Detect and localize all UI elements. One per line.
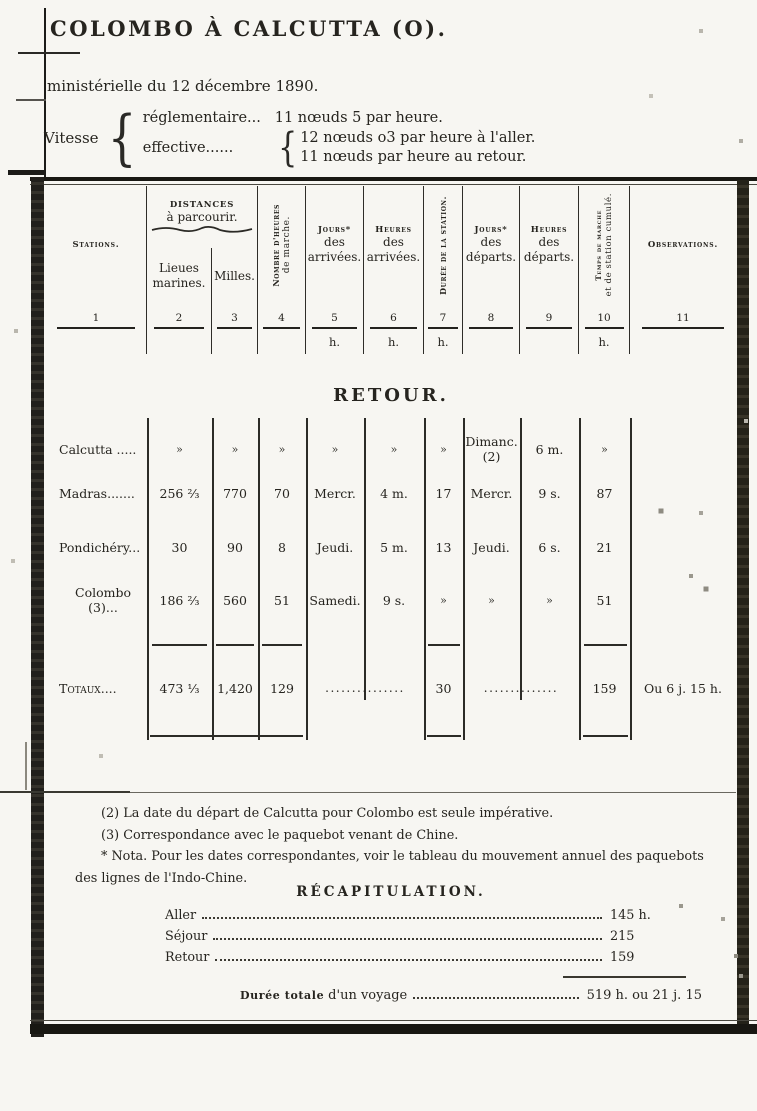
- table-frame-left: [31, 177, 44, 1037]
- footnote-separator-left: [0, 791, 130, 793]
- table-cell: »: [212, 443, 258, 456]
- table-cell: 51: [579, 593, 630, 608]
- recap-value: 215: [610, 929, 705, 944]
- table-cell: 4 m.: [364, 486, 424, 501]
- footnotes-block: (2) La date du départ de Calcutta pour C…: [75, 803, 723, 889]
- recap-label: Séjour: [165, 929, 207, 944]
- header-jours-departs: Jours* des départs.: [463, 186, 520, 304]
- header-temps-cumule: Temps de marche et de station cumulé.: [579, 186, 630, 304]
- table-cell: ...............: [306, 681, 424, 695]
- left-brace-glyph: {: [107, 108, 136, 168]
- closing-rule: [583, 735, 628, 737]
- unit-cell: [258, 330, 306, 354]
- header-heures-arrivees: Heures des arrivées.: [364, 186, 424, 304]
- table-cell: 186 ⅔: [147, 593, 212, 608]
- unit-cell: [46, 330, 147, 354]
- recap-total-value: 519 h. ou 21 j. 15: [587, 988, 702, 1003]
- recap-value: 145 h.: [610, 908, 705, 923]
- header-distances-title: DISTANCES: [170, 200, 234, 210]
- unit-h: h.: [424, 330, 463, 354]
- speed-reglementaire-value: 11 nœuds 5 par heure.: [275, 108, 443, 128]
- table-row-pondichery: Pondichéry... 30 90 8 Jeudi. 5 m. 13 Jeu…: [46, 531, 736, 563]
- column-number: 8: [463, 304, 520, 330]
- observations-cell: Ou 6 j. 15 h.: [630, 681, 736, 696]
- station-name: Colombo (3)...: [46, 585, 147, 615]
- section-title-retour: RETOUR.: [46, 385, 736, 406]
- table-cell: 1,420: [212, 681, 258, 696]
- margin-mark: [25, 742, 27, 790]
- speed-effective-label: effective......: [143, 138, 275, 158]
- margin-tick: [8, 170, 46, 175]
- column-number: 7: [424, 304, 463, 330]
- table-cell: 51: [258, 593, 306, 608]
- recap-row: Séjour 215: [165, 929, 705, 950]
- sum-rule: [262, 644, 302, 646]
- speed-label: Vitesse: [44, 129, 99, 147]
- column-number: 6: [364, 304, 424, 330]
- unit-cell: [463, 330, 520, 354]
- table-cell: 6 m.: [520, 442, 579, 457]
- unit-h: h.: [579, 330, 630, 354]
- table-cell: 256 ⅔: [147, 486, 212, 501]
- table-cell: »: [258, 443, 306, 456]
- header-heures-departs: Heures des départs.: [520, 186, 579, 304]
- timetable-header: Stations. DISTANCES à parcourir. Lieues …: [46, 186, 736, 354]
- footnote: (3) Correspondance avec le paquebot vena…: [75, 825, 723, 847]
- scan-noise: [0, 0, 2, 2]
- speed-effective-value-retour: 11 nœuds par heure au retour.: [300, 148, 535, 167]
- recap-row: Aller 145 h.: [165, 908, 705, 929]
- table-cell: 70: [258, 486, 306, 501]
- speed-effective-value-aller: 12 nœuds o3 par heure à l'aller.: [300, 129, 535, 148]
- station-name: Pondichéry...: [46, 540, 147, 555]
- recap-total-label-caps: Durée totale: [240, 989, 324, 1002]
- table-cell: 770: [212, 486, 258, 501]
- table-cell: »: [306, 443, 364, 456]
- margin-tick: [16, 99, 46, 101]
- footnote: (2) La date du départ de Calcutta pour C…: [75, 803, 723, 825]
- column-number: 11: [630, 304, 736, 330]
- table-frame-right: [737, 180, 749, 1025]
- table-frame-bottom: [30, 1024, 757, 1034]
- speed-row-reglementaire: réglementaire... 11 nœuds 5 par heure.: [143, 108, 536, 128]
- table-cell: 30: [424, 681, 463, 696]
- table-cell: 5 m.: [364, 540, 424, 555]
- unit-cell: [147, 330, 212, 354]
- table-cell: 129: [258, 681, 306, 696]
- dot-leader: [202, 917, 602, 919]
- table-cell: 6 s.: [520, 540, 579, 555]
- table-cell: Jeudi.: [463, 540, 520, 555]
- margin-tick: [18, 52, 80, 54]
- sum-rule: [216, 644, 254, 646]
- dot-leader: [213, 938, 602, 940]
- dot-leader: [215, 959, 602, 961]
- column-number: 4: [258, 304, 306, 330]
- table-cell: »: [424, 443, 463, 456]
- header-distances-sub: à parcourir.: [166, 210, 237, 225]
- closing-rule: [150, 735, 303, 737]
- sum-rule: [152, 644, 207, 646]
- inner-brace-glyph: {: [278, 128, 297, 168]
- column-number: 9: [520, 304, 579, 330]
- table-frame-bottom-inner: [30, 1020, 757, 1021]
- table-cell: Dimanc. (2): [463, 434, 520, 464]
- table-cell: »: [463, 594, 520, 607]
- table-cell: Jeudi.: [306, 540, 364, 555]
- table-cell: 9 s.: [364, 593, 424, 608]
- table-cell: Mercr.: [463, 486, 520, 501]
- column-number: 10: [579, 304, 630, 330]
- unit-cell: [520, 330, 579, 354]
- sum-rule: [584, 644, 627, 646]
- table-cell: »: [364, 443, 424, 456]
- column-number: 5: [306, 304, 364, 330]
- recap-label: Aller: [165, 908, 196, 923]
- totals-label: Totaux....: [46, 681, 147, 696]
- table-cell: 13: [424, 540, 463, 555]
- table-cell: ..............: [463, 681, 579, 695]
- column-number: 2: [147, 304, 212, 330]
- totals-row: Totaux.... 473 ⅓ 1,420 129 .............…: [46, 671, 736, 705]
- header-distances-group: DISTANCES à parcourir. Lieues marines. M…: [147, 186, 258, 304]
- table-cell: 87: [579, 486, 630, 501]
- column-number: 1: [46, 304, 147, 330]
- recap-total-label-rest: d'un voyage: [328, 988, 407, 1003]
- table-frame-top-inner: [30, 184, 757, 185]
- column-number: 3: [212, 304, 258, 330]
- table-cell: 17: [424, 486, 463, 501]
- table-frame-top: [30, 177, 757, 181]
- header-nombre-heures: Nombre d'heures de marche.: [258, 186, 306, 304]
- table-cell: 9 s.: [520, 486, 579, 501]
- table-cell: 30: [147, 540, 212, 555]
- recap-rows: Aller 145 h. Séjour 215 Retour 159: [165, 908, 705, 971]
- distances-brace-wave: [150, 225, 254, 234]
- closing-rule: [427, 735, 461, 737]
- table-cell: 159: [579, 681, 630, 696]
- table-cell: 8: [258, 540, 306, 555]
- dot-leader: [413, 997, 578, 999]
- station-name: Calcutta .....: [46, 442, 147, 457]
- table-row-madras: Madras....... 256 ⅔ 770 70 Mercr. 4 m. 1…: [46, 477, 736, 509]
- header-lieues: Lieues marines.: [147, 248, 212, 304]
- recap-title: RÉCAPITULATION.: [46, 884, 736, 900]
- recap-row: Retour 159: [165, 950, 705, 971]
- total-rule: [563, 976, 686, 978]
- header-jours-arrivees: Jours* des arrivées.: [306, 186, 364, 304]
- table-cell: 90: [212, 540, 258, 555]
- table-cell: Samedi.: [306, 593, 364, 608]
- recap-label: Retour: [165, 950, 209, 965]
- table-row-colombo: Colombo (3)... 186 ⅔ 560 51 Samedi. 9 s.…: [46, 584, 736, 616]
- table-cell: 21: [579, 540, 630, 555]
- sum-rule: [428, 644, 460, 646]
- table-cell: »: [520, 594, 579, 607]
- table-row-calcutta: Calcutta ..... » » » » » » Dimanc. (2) 6…: [46, 426, 736, 472]
- header-milles: Milles.: [212, 248, 257, 304]
- table-cell: »: [579, 443, 630, 456]
- table-cell: 473 ⅓: [147, 681, 212, 696]
- speed-row-effective: effective...... { 12 nœuds o3 par heure …: [143, 128, 536, 168]
- page-title: COLOMBO À CALCUTTA (O).: [50, 16, 447, 41]
- table-cell: »: [424, 594, 463, 607]
- unit-cell: [630, 330, 736, 354]
- header-duree-station: Durée de la station.: [424, 186, 463, 304]
- header-observations: Observations.: [630, 186, 736, 304]
- footnote: * Nota. Pour les dates correspondantes, …: [75, 846, 723, 889]
- unit-cell: [212, 330, 258, 354]
- speed-reglementaire-label: réglementaire...: [143, 108, 275, 128]
- scanned-page: COLOMBO À CALCUTTA (O). ministérielle du…: [0, 0, 757, 1111]
- unit-h: h.: [306, 330, 364, 354]
- edition-note: ministérielle du 12 décembre 1890.: [47, 77, 318, 95]
- header-stations: Stations.: [46, 186, 147, 304]
- recap-total-row: Durée totale d'un voyage 519 h. ou 21 j.…: [240, 988, 702, 1003]
- table-cell: »: [147, 443, 212, 456]
- station-name: Madras.......: [46, 486, 147, 501]
- speed-block: Vitesse { réglementaire... 11 nœuds 5 pa…: [44, 108, 535, 168]
- recap-value: 159: [610, 950, 705, 965]
- unit-h: h.: [364, 330, 424, 354]
- table-cell: 560: [212, 593, 258, 608]
- table-cell: Mercr.: [306, 486, 364, 501]
